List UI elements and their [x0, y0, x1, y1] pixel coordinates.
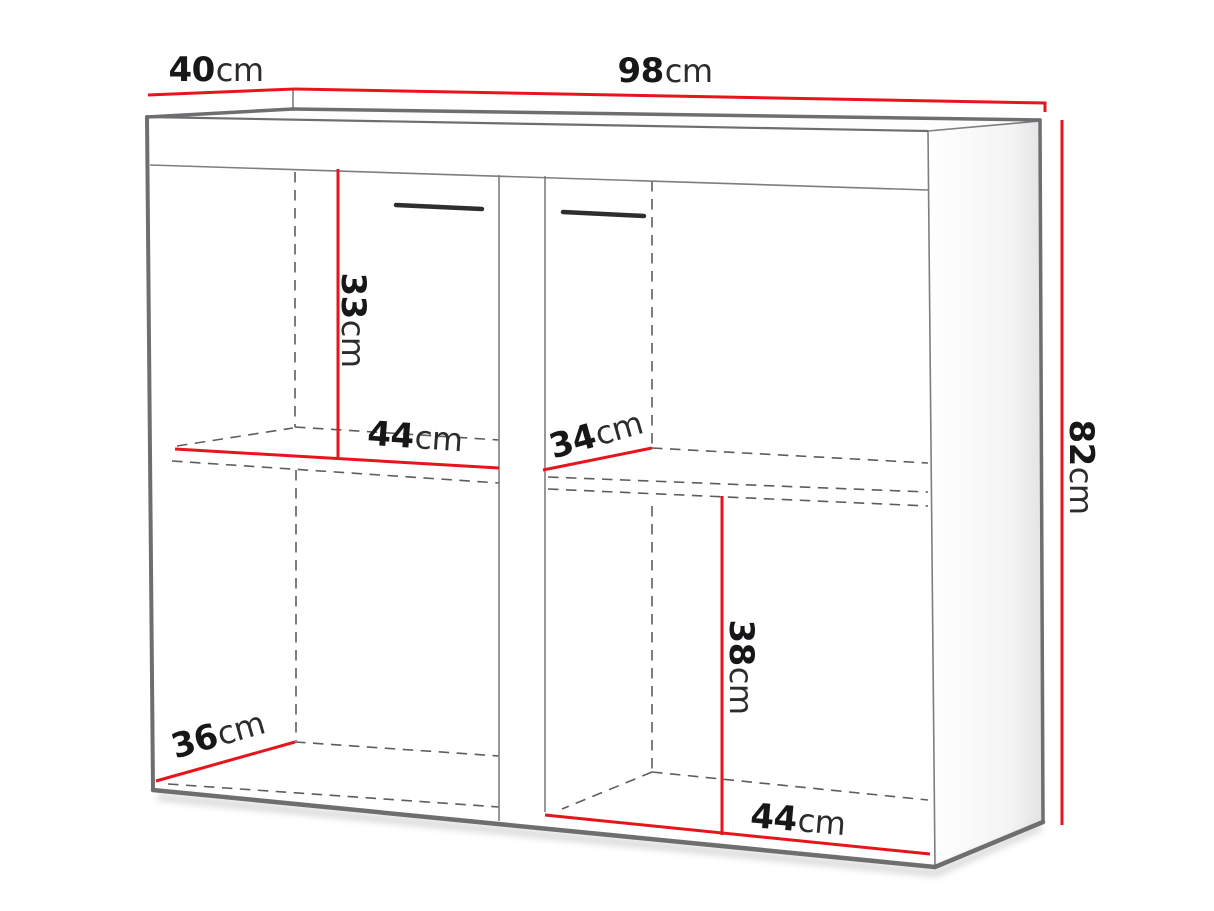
dim-label-depth-top: 40cm — [168, 53, 263, 87]
dim-value: 44 — [749, 796, 799, 840]
dim-label-height-right: 82cm — [1064, 419, 1098, 514]
hidden-left-floor-back-edge — [295, 742, 499, 756]
dim-unit: cm — [665, 52, 713, 90]
hidden-left-shelf-side-edge — [177, 428, 293, 446]
left-front-edge — [147, 117, 153, 790]
hidden-right-shelf-back-edge — [652, 448, 928, 463]
dim-unit: cm — [796, 801, 847, 843]
dim-label-shelf-height-left: 33cm — [336, 272, 370, 367]
dim-value: 44 — [366, 414, 415, 457]
right-door-handle — [563, 212, 644, 216]
dim-unit: cm — [413, 418, 463, 459]
dimension-diagram: 40cm 98cm 82cm 33cm 44cm 34cm 38cm 44cm … — [0, 0, 1214, 911]
dim-label-lower-height-right: 38cm — [724, 619, 758, 714]
dim-line-width-top — [295, 89, 1045, 112]
hidden-right-shelf-bottom-edge — [548, 489, 928, 506]
cabinet-right-face — [928, 121, 1043, 867]
dim-value: 33 — [333, 272, 373, 318]
hidden-right-floor-back-edge — [652, 772, 928, 800]
dim-value: 40 — [168, 50, 214, 90]
hidden-right-floor-side-edge — [562, 772, 652, 809]
hidden-right-shelf-front-edge — [548, 477, 928, 492]
dim-value: 98 — [617, 51, 663, 91]
interior-ceiling-edge — [150, 165, 928, 190]
cabinet-line-drawing — [0, 0, 1214, 911]
dim-unit: cm — [722, 667, 760, 715]
dim-unit: cm — [216, 51, 264, 89]
dim-label-inner-width-left: 44cm — [366, 417, 463, 458]
dim-label-width-top: 98cm — [617, 54, 712, 88]
dim-value: 82 — [1061, 419, 1101, 465]
dim-label-inner-width-right: 44cm — [749, 799, 847, 841]
dim-unit: cm — [334, 320, 372, 368]
dim-value: 38 — [721, 619, 761, 665]
left-door-handle — [396, 205, 482, 209]
dim-unit: cm — [1062, 467, 1100, 515]
